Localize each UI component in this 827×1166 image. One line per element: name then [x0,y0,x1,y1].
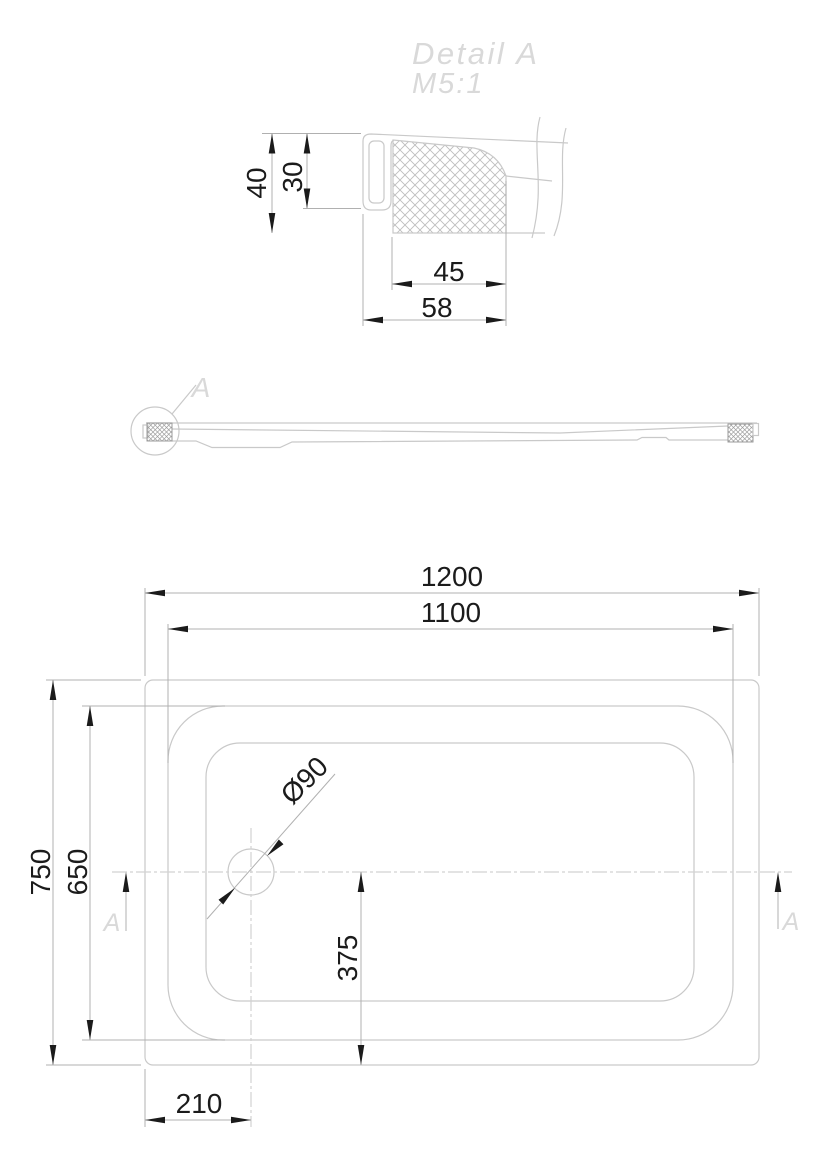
right-lip-tab [753,424,759,436]
dim-diameter-label: Ø90 [275,751,334,810]
dim-40-label: 40 [241,167,272,198]
dim-375-label: 375 [332,935,363,982]
detail-view-scale: M5:1 [412,68,484,100]
arrowhead-up [87,706,94,726]
dim-58-label: 58 [421,292,452,323]
arrowhead-right [739,590,759,597]
engineering-drawing-page: Detail A M5:1 40 30 [0,0,827,1166]
dim-650: 650 [62,706,225,1040]
inner-surface-line [506,176,552,181]
arrowhead-up [50,680,57,700]
arrowhead-up [269,134,276,154]
arrowhead-left [363,317,383,324]
detail-view-title: Detail A [412,36,539,71]
dim-drain-diameter: Ø90 [207,751,335,919]
side-profile-view: A [131,372,759,455]
dim-210-label: 210 [176,1088,223,1119]
section-marker-left: A [102,872,130,937]
tray-rim-rect [168,706,733,1040]
dim-30: 30 [277,134,361,209]
dim-1200-label: 1200 [421,561,483,592]
arrowhead-right [486,281,506,288]
tray-inner-edge [172,426,728,433]
section-label-left: A [102,909,121,937]
dim-210: 210 [145,1069,251,1127]
tray-bottom-contour [172,438,728,448]
detail-label: A [190,372,211,403]
drawing-canvas: Detail A M5:1 40 30 [0,0,827,1166]
detail-a-view: Detail A M5:1 40 30 [241,36,568,326]
section-label-right: A [781,908,800,936]
arrowhead-up [358,872,365,892]
arrowhead-left [392,281,412,288]
arrowhead-down [358,1045,365,1065]
dim-30-label: 30 [277,161,308,192]
section-arrow-up [775,872,782,892]
arrowhead-right [231,1117,251,1124]
dim-45-label: 45 [433,256,464,287]
left-rim-section-hatch [147,423,172,441]
section-marker-right: A [775,872,800,936]
hatch-region [393,140,506,233]
arrowhead-down [269,213,276,233]
arrowhead-left [145,590,165,597]
section-arrow-up [123,872,130,892]
dim-375: 375 [332,872,364,1065]
arrowhead-left [145,1117,165,1124]
arrowhead-up [304,134,311,154]
arrowhead-right [486,317,506,324]
arrowhead-down [87,1020,94,1040]
arrowhead-left [168,626,188,633]
break-line [532,117,540,238]
arrowhead-right [713,626,733,633]
dim-1100-label: 1100 [421,597,481,628]
break-line [554,128,566,236]
arrowhead-down [50,1045,57,1065]
dim-750-label: 750 [25,849,56,896]
dim-650-label: 650 [62,849,93,896]
arrowhead-upper-right [219,886,238,905]
right-rim-section-hatch [728,424,753,442]
plan-view: 1200 1100 750 650 [25,561,799,1127]
rim-lip-cavity [369,141,384,203]
